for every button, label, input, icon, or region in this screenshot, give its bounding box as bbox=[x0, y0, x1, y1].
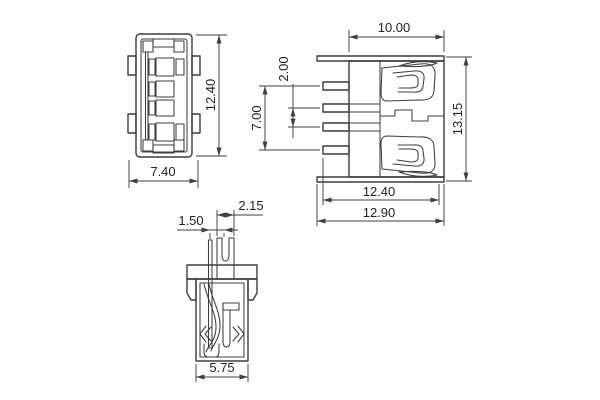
side-view-left-ear bbox=[187, 279, 196, 300]
front-view-bottom-lip bbox=[399, 171, 437, 176]
front-view-pin-slots bbox=[349, 104, 379, 131]
dim-label-front-pin-pitch: 2.00 bbox=[276, 56, 291, 81]
front-view-shell-body bbox=[349, 61, 444, 177]
dimension-lines bbox=[129, 30, 472, 382]
dim-label-top-view-width: 7.40 bbox=[150, 164, 175, 179]
dim-label-top-view-height: 12.40 bbox=[203, 79, 218, 112]
front-view-pins bbox=[323, 82, 349, 154]
side-view-right-ear bbox=[248, 279, 257, 300]
top-view bbox=[128, 34, 200, 157]
dim-label-side-post-width: 2.15 bbox=[238, 198, 263, 213]
dimension-labels: 12.40 7.40 10.00 2.00 7.00 13.15 12.40 1… bbox=[150, 20, 465, 375]
dim-label-side-body-width: 5.75 bbox=[209, 360, 234, 375]
top-view-contact-pads bbox=[149, 58, 184, 141]
front-view-tongue-step bbox=[380, 110, 444, 121]
top-view-contact-rail bbox=[146, 52, 149, 140]
dim-label-front-height: 13.15 bbox=[450, 103, 465, 136]
dim-label-side-contact-offset: 1.50 bbox=[178, 213, 203, 228]
front-view-bottom-flange bbox=[317, 177, 444, 182]
dim-label-front-shell-width: 10.00 bbox=[378, 20, 411, 35]
technical-drawing-canvas: 12.40 7.40 10.00 2.00 7.00 13.15 12.40 1… bbox=[0, 0, 600, 400]
dim-label-front-pin-span: 7.00 bbox=[249, 105, 264, 130]
front-view-upper-contact bbox=[381, 64, 435, 101]
front-view-lower-contact bbox=[381, 136, 435, 173]
front-view-top-flange bbox=[317, 56, 444, 61]
side-view-cap bbox=[187, 265, 257, 279]
dim-label-front-overall-width: 12.90 bbox=[363, 205, 396, 220]
side-view bbox=[187, 238, 257, 361]
top-view-top-bar bbox=[153, 39, 174, 47]
side-view-forked-post bbox=[217, 238, 234, 279]
top-view-side-tabs bbox=[128, 56, 200, 133]
front-view bbox=[317, 56, 444, 182]
dim-label-front-body-width: 12.40 bbox=[363, 184, 396, 199]
side-view-spring-details bbox=[200, 284, 244, 357]
